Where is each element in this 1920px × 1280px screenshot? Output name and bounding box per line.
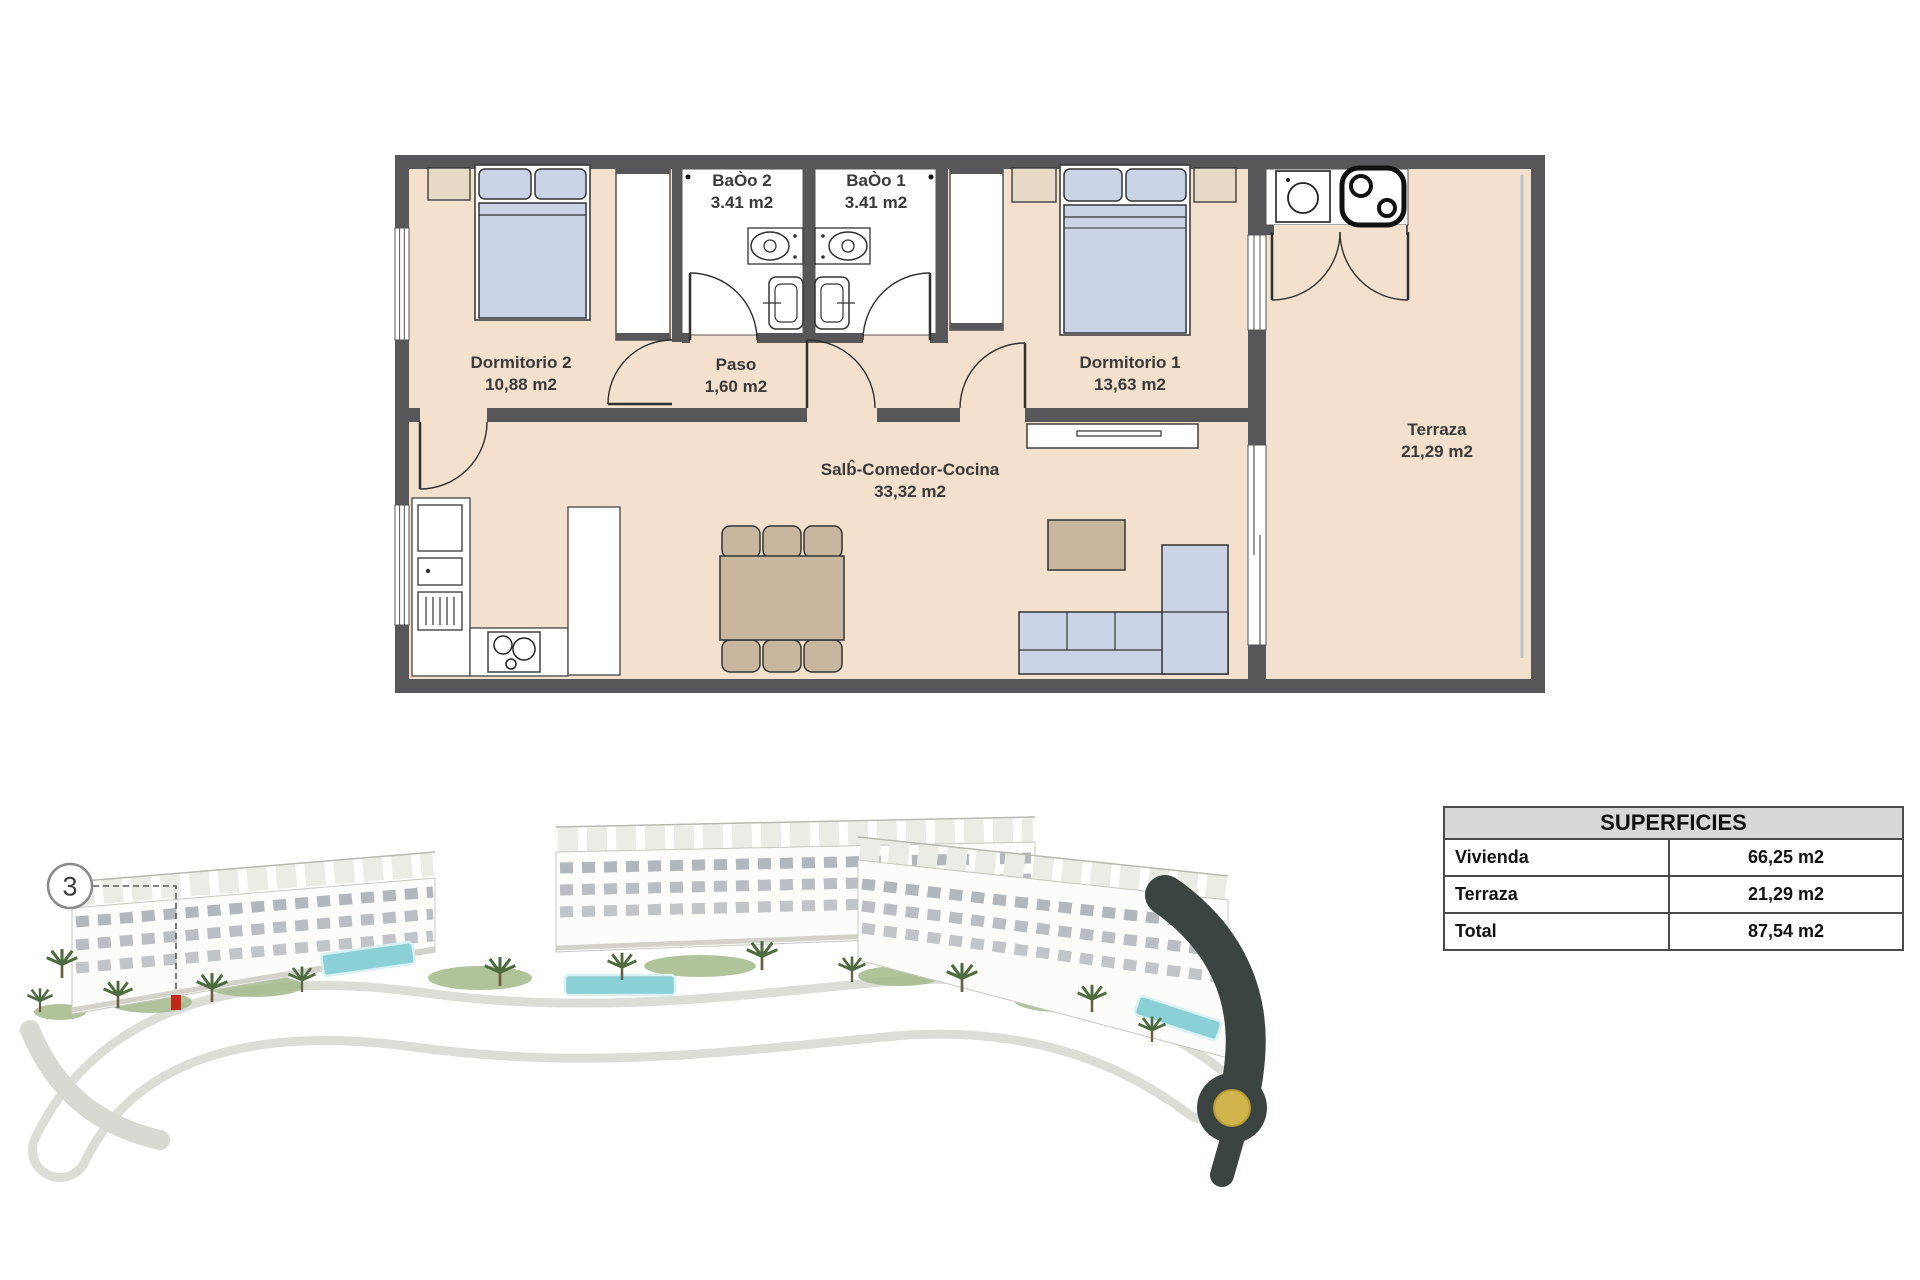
coffee-table-icon <box>1048 520 1125 570</box>
room-label-bano1: BaÒo 1 3.41 m2 <box>845 170 907 214</box>
stove-icon <box>488 632 540 672</box>
room-label-terraza: Terraza 21,29 m2 <box>1401 419 1473 463</box>
room-label-dormitorio2: Dormitorio 2 10,88 m2 <box>470 352 571 396</box>
row-label: Terraza <box>1445 877 1670 912</box>
table-row: Total 87,54 m2 <box>1445 914 1902 949</box>
superficies-table-title: SUPERFICIES <box>1445 808 1902 840</box>
tv-unit-icon <box>1027 424 1198 448</box>
unit-marker-number: 3 <box>62 872 77 903</box>
bed-icon <box>475 165 590 320</box>
sink-icon <box>748 228 803 264</box>
superficies-table: SUPERFICIES Vivienda 66,25 m2 Terraza 21… <box>1443 806 1904 951</box>
wardrobe-icon <box>616 167 670 340</box>
water-heater-icon <box>1342 168 1404 225</box>
row-value: 21,29 m2 <box>1670 877 1902 912</box>
washing-machine-icon <box>1276 171 1330 222</box>
floor-plan-graphics <box>0 0 1920 1280</box>
room-label-paso: Paso 1,60 m2 <box>705 354 767 398</box>
toilet-icon <box>763 277 803 329</box>
marked-unit-dot <box>171 995 181 1010</box>
window-icon <box>1248 235 1266 330</box>
nightstand-icon <box>1194 168 1236 202</box>
kitchen-island <box>568 507 620 675</box>
window-icon <box>395 505 409 625</box>
nightstand-icon <box>428 168 470 200</box>
nightstand-icon <box>1012 168 1056 202</box>
window-icon <box>395 228 409 340</box>
row-value: 66,25 m2 <box>1670 840 1902 875</box>
room-label-bano2: BaÒo 2 3.41 m2 <box>711 170 773 214</box>
row-label: Total <box>1445 914 1670 949</box>
oven-icon <box>418 558 462 585</box>
wardrobe-icon <box>950 167 1003 330</box>
floor-plan <box>395 155 1545 693</box>
site-render <box>27 817 1267 1175</box>
dining-table-icon <box>720 526 844 672</box>
page: Dormitorio 2 10,88 m2 BaÒo 2 3.41 m2 BaÒ… <box>0 0 1920 1280</box>
room-label-salon: Salb̂-Comedor-Cocina 33,32 m2 <box>821 459 1000 503</box>
table-row: Vivienda 66,25 m2 <box>1445 840 1902 877</box>
sink-icon <box>815 228 870 264</box>
table-row: Terraza 21,29 m2 <box>1445 877 1902 914</box>
room-label-dormitorio1: Dormitorio 1 13,63 m2 <box>1079 352 1180 396</box>
dishwasher-icon <box>418 592 462 630</box>
toilet-icon <box>815 277 855 329</box>
bed-icon <box>1060 165 1190 335</box>
sliding-glass-door-icon <box>1248 445 1266 645</box>
row-value: 87,54 m2 <box>1670 914 1902 949</box>
row-label: Vivienda <box>1445 840 1670 875</box>
